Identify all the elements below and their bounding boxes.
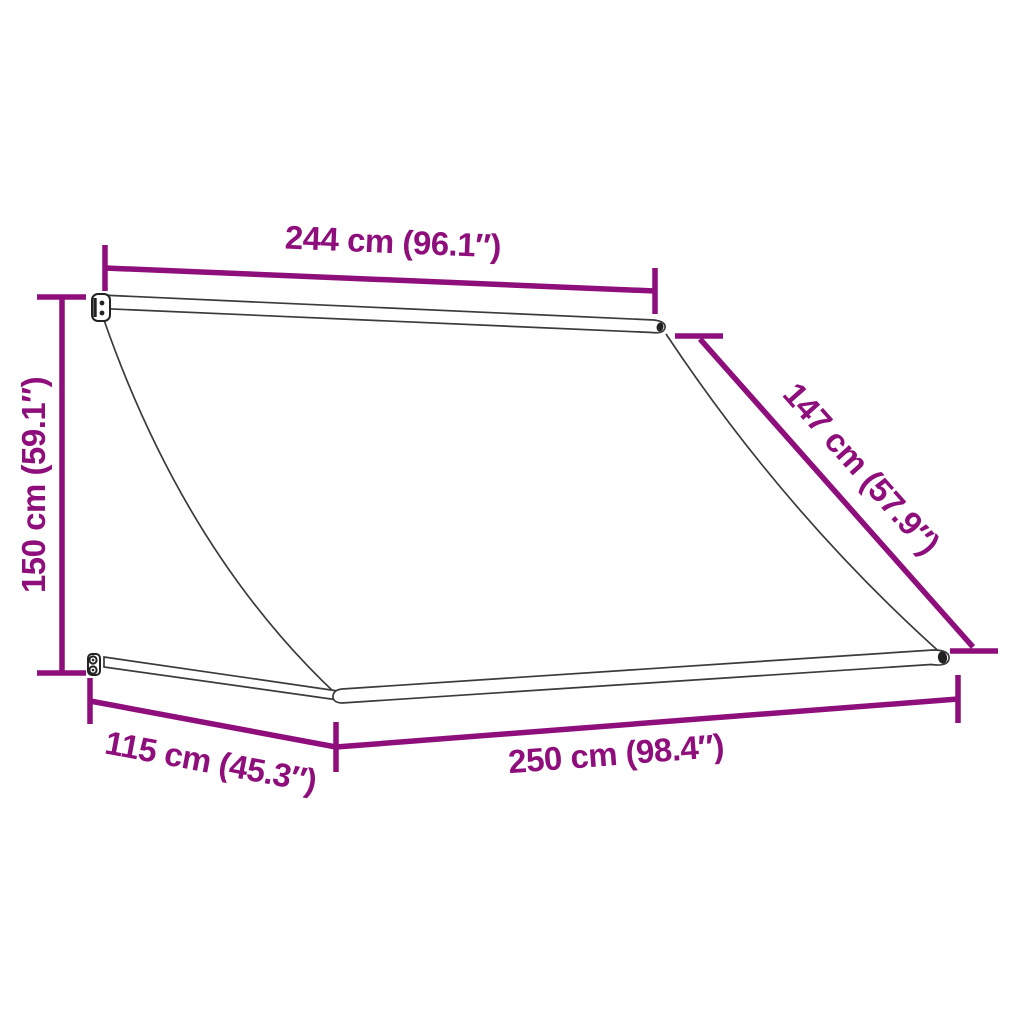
dimension-depth: 115 cm (45.3″): [90, 678, 336, 799]
awning-top-bar: [95, 295, 665, 333]
awning-side-arm-left: [104, 657, 338, 700]
dimension-side-slope: 147 cm (57.9″): [675, 336, 998, 651]
awning-front-bar: [333, 650, 949, 703]
dimension-line: [105, 268, 655, 291]
awning-drawing: [88, 294, 949, 703]
fabric-edge-left: [104, 320, 336, 694]
dimension-label-height: 150 cm (59.1″): [15, 377, 52, 593]
dimension-label-top-width: 244 cm (96.1″): [284, 218, 501, 264]
dimension-height: 150 cm (59.1″): [15, 297, 86, 673]
wall-mount-bottom: [88, 654, 100, 675]
dimension-diagram: 244 cm (96.1″) 150 cm (59.1″) 147 cm (57…: [0, 0, 1024, 1024]
wall-mount-top: [92, 294, 110, 321]
dimension-label-bottom-width: 250 cm (98.4″): [507, 727, 725, 780]
dimension-line: [700, 339, 973, 647]
dimension-label-depth: 115 cm (45.3″): [102, 724, 319, 800]
dimension-label-side-slope: 147 cm (57.9″): [776, 375, 947, 561]
awning-diagram-canvas: 244 cm (96.1″) 150 cm (59.1″) 147 cm (57…: [0, 0, 1024, 1024]
